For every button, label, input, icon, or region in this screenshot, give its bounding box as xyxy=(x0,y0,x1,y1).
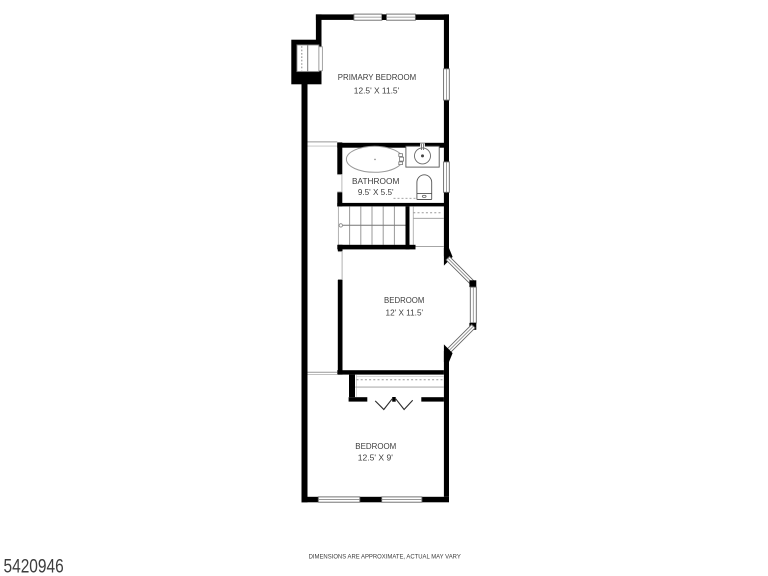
svg-text:PRIMARY BEDROOM: PRIMARY BEDROOM xyxy=(338,72,416,82)
svg-text:BATHROOM: BATHROOM xyxy=(352,176,399,186)
svg-text:BEDROOM: BEDROOM xyxy=(384,295,424,305)
svg-text:12.5' X 11.5': 12.5' X 11.5' xyxy=(354,86,400,96)
svg-text:DIMENSIONS ARE APPROXIMATE, AC: DIMENSIONS ARE APPROXIMATE, ACTUAL MAY V… xyxy=(309,553,462,560)
svg-text:12' X 11.5': 12' X 11.5' xyxy=(386,308,424,318)
svg-text:12.5' X 9': 12.5' X 9' xyxy=(358,453,393,463)
svg-text:9.5' X 5.5': 9.5' X 5.5' xyxy=(358,187,394,197)
svg-text:BEDROOM: BEDROOM xyxy=(355,441,396,451)
svg-text:5420946: 5420946 xyxy=(4,556,64,576)
